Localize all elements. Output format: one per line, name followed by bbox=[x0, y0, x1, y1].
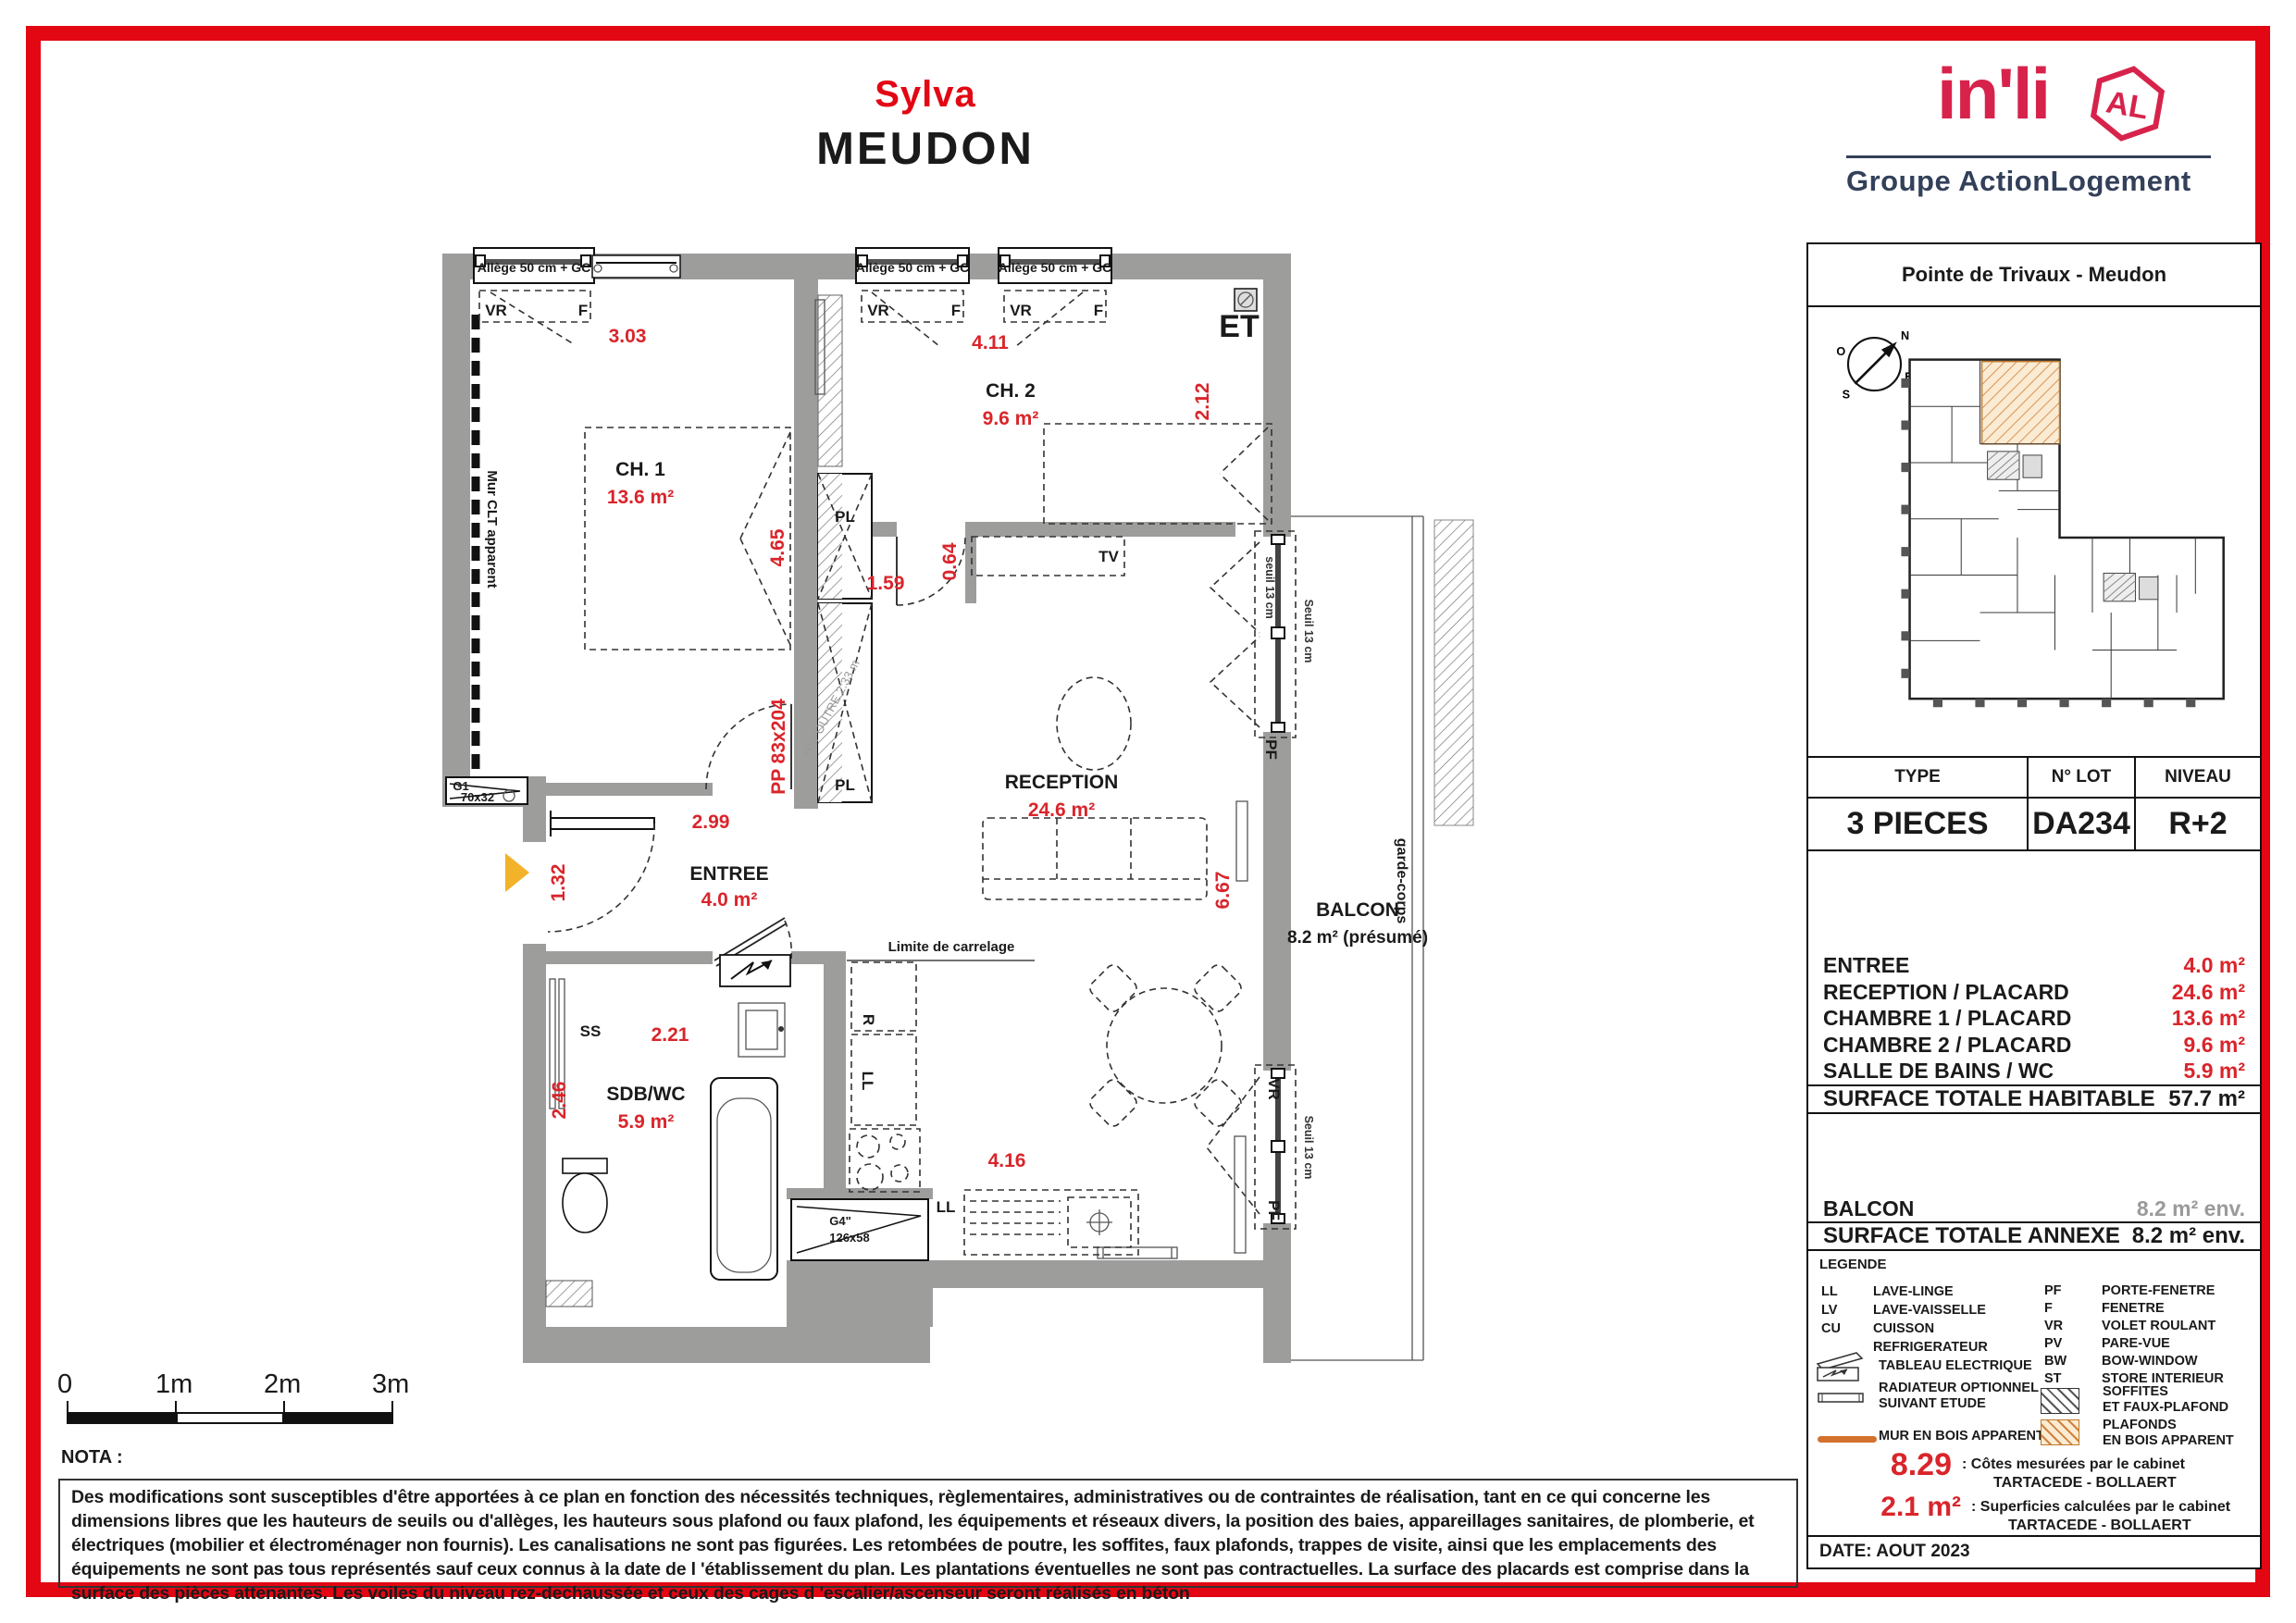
inli-wordmark: in'li bbox=[1937, 52, 2049, 136]
dim-246: 2.46 bbox=[549, 1082, 570, 1120]
mur-bois-label: MUR EN BOIS APPARENT bbox=[1879, 1429, 2044, 1444]
room-row-entree: ENTREE4.0 m² bbox=[1808, 952, 2260, 979]
dim-667: 6.67 bbox=[1212, 872, 1234, 910]
ll-label-2: LL bbox=[937, 1198, 956, 1216]
dim-465: 4.65 bbox=[767, 528, 788, 566]
mur-bois-icon bbox=[1818, 1436, 1877, 1443]
soffite-hatch-right bbox=[1434, 520, 1473, 825]
room-row-chambre1: CHAMBRE 1 / PLACARD13.6 m² bbox=[1808, 1005, 2260, 1032]
vr-label-pf2: VR bbox=[1265, 1078, 1283, 1100]
pf-label-1: PF bbox=[1262, 739, 1280, 760]
g1-size-label: 70x32 bbox=[461, 790, 494, 804]
reception-name: RECEPTION bbox=[1005, 772, 1119, 793]
soffites-label: SOFFITES ET FAUX-PLAFOND bbox=[2103, 1384, 2228, 1416]
tile-limit-label: Limite de carrelage bbox=[888, 939, 1015, 955]
room-value: 24.6 m² bbox=[2172, 979, 2245, 1006]
scale-1m: 1m bbox=[155, 1369, 192, 1400]
balcon-value: 8.2 m² env. bbox=[2137, 1196, 2245, 1221]
sofa bbox=[983, 818, 1207, 899]
unit-highlight bbox=[1982, 362, 2060, 444]
window-g4 bbox=[791, 1199, 928, 1260]
inli-logo: in'li AL Groupe ActionLogement bbox=[1846, 65, 2216, 204]
g4-size-label: 126x58 bbox=[829, 1231, 869, 1245]
sdb-area: 5.9 m² bbox=[618, 1111, 675, 1133]
type-header: TYPE bbox=[1808, 758, 2029, 799]
al-badge-text: AL bbox=[2104, 84, 2151, 126]
floor-plan: Allège 50 cm + GC Allège 50 cm + GC Allè… bbox=[435, 242, 1476, 1371]
dim-132: 1.32 bbox=[548, 864, 569, 902]
al-hexagon-icon: AL bbox=[2089, 65, 2166, 142]
washer-unit bbox=[964, 1190, 1138, 1255]
electrical-panel bbox=[720, 955, 790, 986]
date-divider bbox=[1808, 1535, 2260, 1537]
balcon-row: BALCON 8.2 m² env. bbox=[1808, 1196, 2260, 1223]
dim-299: 2.99 bbox=[692, 811, 730, 833]
annexe-value: 8.2 m² env. bbox=[2132, 1223, 2245, 1249]
porte-fenetre-reception bbox=[1210, 531, 1296, 737]
room-value: 5.9 m² bbox=[2184, 1058, 2245, 1084]
vr-label-3: VR bbox=[1010, 302, 1032, 319]
scale-3m: 3m bbox=[372, 1369, 409, 1400]
legend-item: CUCUISSON bbox=[1821, 1319, 1988, 1338]
room-label: SALLE DE BAINS / WC bbox=[1823, 1058, 2054, 1084]
logo-divider bbox=[1846, 155, 2211, 158]
room-label: CHAMBRE 1 / PLACARD bbox=[1823, 1005, 2071, 1032]
nota-text: Des modifications sont susceptibles d'êt… bbox=[58, 1479, 1798, 1588]
room-row-chambre2: CHAMBRE 2 / PLACARD9.6 m² bbox=[1808, 1032, 2260, 1059]
drawing-title: Sylva MEUDON bbox=[731, 74, 1120, 175]
dim-212: 2.12 bbox=[1192, 383, 1213, 421]
legend-item: FFENETRE bbox=[2044, 1300, 2224, 1318]
plafonds-hatch-icon bbox=[2041, 1419, 2079, 1445]
fixed-pane bbox=[592, 255, 680, 278]
allege-label-1: Allège 50 cm + GC bbox=[478, 260, 591, 275]
total-value: 57.7 m² bbox=[2168, 1086, 2245, 1112]
pl-label-1: PL bbox=[835, 508, 855, 526]
lot-table: TYPE N° LOT NIVEAU 3 PIECES DA234 R+2 bbox=[1808, 756, 2260, 851]
total-label: SURFACE TOTALE HABITABLE bbox=[1823, 1086, 2155, 1112]
allege-label-3: Allège 50 cm + GC bbox=[999, 260, 1112, 275]
ch1-name: CH. 1 bbox=[615, 459, 665, 480]
plafonds-label: PLAFONDS EN BOIS APPARENT bbox=[2103, 1418, 2234, 1449]
balcon-area: 8.2 m² (présumé) bbox=[1287, 928, 1428, 948]
wall-outlet-icon bbox=[1235, 289, 1257, 311]
annexe-label: SURFACE TOTALE ANNEXE bbox=[1823, 1223, 2120, 1249]
pf-label-2: PF bbox=[1265, 1200, 1283, 1220]
balcon-name: BALCON bbox=[1316, 899, 1399, 921]
scale-2m: 2m bbox=[264, 1369, 301, 1400]
sdb-name: SDB/WC bbox=[606, 1084, 685, 1105]
seuil-label-2: Seuil 13 cm bbox=[1302, 600, 1315, 663]
electrical-panel-icon bbox=[1816, 1349, 1864, 1384]
seuil-label-3: Seuil 13 cm bbox=[1302, 1116, 1315, 1180]
title-block: Pointe de Trivaux - Meudon N O S E bbox=[1806, 242, 2262, 1569]
allege-label-2: Allège 50 cm + GC bbox=[856, 260, 970, 275]
seuil-label-1: seuil 13 cm bbox=[1263, 556, 1276, 618]
room-value: 13.6 m² bbox=[2172, 1005, 2245, 1032]
dim-411: 4.11 bbox=[972, 332, 1009, 353]
cotes-value: 8.29 bbox=[1864, 1447, 1952, 1483]
room-label: ENTREE bbox=[1823, 952, 1909, 979]
bathtub bbox=[711, 1078, 777, 1280]
ch2-name: CH. 2 bbox=[986, 380, 1036, 402]
hanging-chair bbox=[1057, 677, 1131, 770]
dim-416: 4.16 bbox=[988, 1150, 1026, 1171]
lot-header: N° LOT bbox=[2029, 758, 2136, 799]
tableau-label: TABLEAU ELECTRIQUE bbox=[1879, 1358, 2032, 1374]
dining-table bbox=[1087, 962, 1245, 1130]
legend-item: PFPORTE-FENETRE bbox=[2044, 1282, 2224, 1300]
legend-item: VRVOLET ROULANT bbox=[2044, 1318, 2224, 1335]
nota-label: NOTA : bbox=[61, 1447, 123, 1468]
site-plan-thumbnail bbox=[1868, 329, 2247, 746]
superficies-text: : Superficies calculées par le cabinet bbox=[1971, 1499, 2230, 1516]
washbasin bbox=[738, 1003, 785, 1057]
legend-col2: PFPORTE-FENETRE FFENETRE VRVOLET ROULANT… bbox=[2044, 1282, 2224, 1388]
niveau-header: NIVEAU bbox=[2136, 758, 2260, 799]
bath-mat-hatch bbox=[546, 1281, 592, 1307]
dim-064: 0.64 bbox=[939, 542, 961, 580]
ss-label: SS bbox=[580, 1022, 602, 1040]
balcon-label: BALCON bbox=[1823, 1196, 1914, 1221]
dim-303: 3.03 bbox=[609, 326, 647, 347]
ll-label-1: LL bbox=[859, 1072, 876, 1091]
radiator-reception bbox=[1098, 1247, 1177, 1258]
pl-label-2: PL bbox=[835, 776, 855, 794]
bed-ch2 bbox=[1044, 424, 1272, 524]
dim-221: 2.21 bbox=[652, 1024, 689, 1046]
superficies-value: 2.1 m² bbox=[1845, 1492, 1961, 1523]
legend-col1: LLLAVE-LINGE LVLAVE-VAISSELLE CUCUISSON … bbox=[1821, 1282, 1988, 1357]
entree-area: 4.0 m² bbox=[701, 889, 758, 911]
legend-item: BWBOW-WINDOW bbox=[2044, 1353, 2224, 1370]
scale-0: 0 bbox=[57, 1369, 72, 1400]
ch2-area: 9.6 m² bbox=[983, 408, 1039, 429]
date-label: DATE: AOUT 2023 bbox=[1819, 1542, 1970, 1562]
lot-value: DA234 bbox=[2029, 799, 2136, 849]
dim-159: 1.59 bbox=[867, 573, 905, 594]
vr-label-1: VR bbox=[485, 302, 507, 319]
room-row-sdb: SALLE DE BAINS / WC5.9 m² bbox=[1808, 1058, 2260, 1084]
et-label: ET bbox=[1219, 309, 1260, 344]
f-label-1: F bbox=[578, 302, 588, 319]
total-habitable-row: SURFACE TOTALE HABITABLE 57.7 m² bbox=[1808, 1084, 2260, 1114]
f-label-3: F bbox=[1094, 302, 1103, 319]
room-row-reception: RECEPTION / PLACARD24.6 m² bbox=[1808, 979, 2260, 1006]
vr-label-2: VR bbox=[867, 302, 889, 319]
compass-s: S bbox=[1843, 389, 1850, 402]
radiateur-label: RADIATEUR OPTIONNEL SUIVANT ETUDE bbox=[1879, 1381, 2039, 1412]
type-value: 3 PIECES bbox=[1808, 799, 2029, 849]
radiator-balcony-wall bbox=[1236, 801, 1247, 881]
entrance-arrow bbox=[505, 853, 529, 892]
reception-area: 24.6 m² bbox=[1028, 799, 1095, 821]
mur-clt-label: Mur CLT apparent bbox=[484, 470, 500, 588]
compass-o: O bbox=[1836, 345, 1845, 358]
group-name: Groupe ActionLogement bbox=[1846, 165, 2191, 198]
pp-label: PP 83x204 bbox=[768, 699, 789, 795]
legend-item: PVPARE-VUE bbox=[2044, 1335, 2224, 1353]
legend-title: LEGENDE bbox=[1819, 1257, 1887, 1272]
tv-label: TV bbox=[1098, 548, 1119, 565]
city-name: MEUDON bbox=[731, 123, 1120, 175]
project-name: Sylva bbox=[731, 74, 1120, 116]
cotes-cabinet: TARTACEDE - BOLLAERT bbox=[1993, 1475, 2177, 1492]
soffites-hatch-icon bbox=[2041, 1388, 2079, 1414]
residence-name: Pointe de Trivaux - Meudon bbox=[1902, 263, 2166, 287]
annexe-row: SURFACE TOTALE ANNEXE 8.2 m² env. bbox=[1808, 1223, 2260, 1251]
room-value: 4.0 m² bbox=[2184, 952, 2245, 979]
radiator-icon bbox=[1818, 1392, 1864, 1405]
soffite-hatch-ch2 bbox=[818, 295, 842, 466]
room-value: 9.6 m² bbox=[2184, 1032, 2245, 1059]
f-label-2: F bbox=[951, 302, 961, 319]
g4-label: G4" bbox=[829, 1214, 851, 1228]
toilet bbox=[563, 1158, 607, 1233]
room-label: CHAMBRE 2 / PLACARD bbox=[1823, 1032, 2071, 1059]
niveau-value: R+2 bbox=[2136, 799, 2260, 849]
entree-name: ENTREE bbox=[689, 863, 768, 885]
legend-item: LVLAVE-VAISSELLE bbox=[1821, 1301, 1988, 1319]
panel-header: Pointe de Trivaux - Meudon bbox=[1808, 244, 2260, 307]
room-label: RECEPTION / PLACARD bbox=[1823, 979, 2069, 1006]
ch1-area: 13.6 m² bbox=[607, 487, 674, 508]
cotes-text: : Côtes mesurées par le cabinet bbox=[1962, 1456, 2185, 1473]
room-areas-list: ENTREE4.0 m² RECEPTION / PLACARD24.6 m² … bbox=[1808, 952, 2260, 1084]
fridge-label: R bbox=[860, 1014, 877, 1025]
legend-item: LLLAVE-LINGE bbox=[1821, 1282, 1988, 1301]
superficies-cabinet: TARTACEDE - BOLLAERT bbox=[2008, 1518, 2191, 1534]
